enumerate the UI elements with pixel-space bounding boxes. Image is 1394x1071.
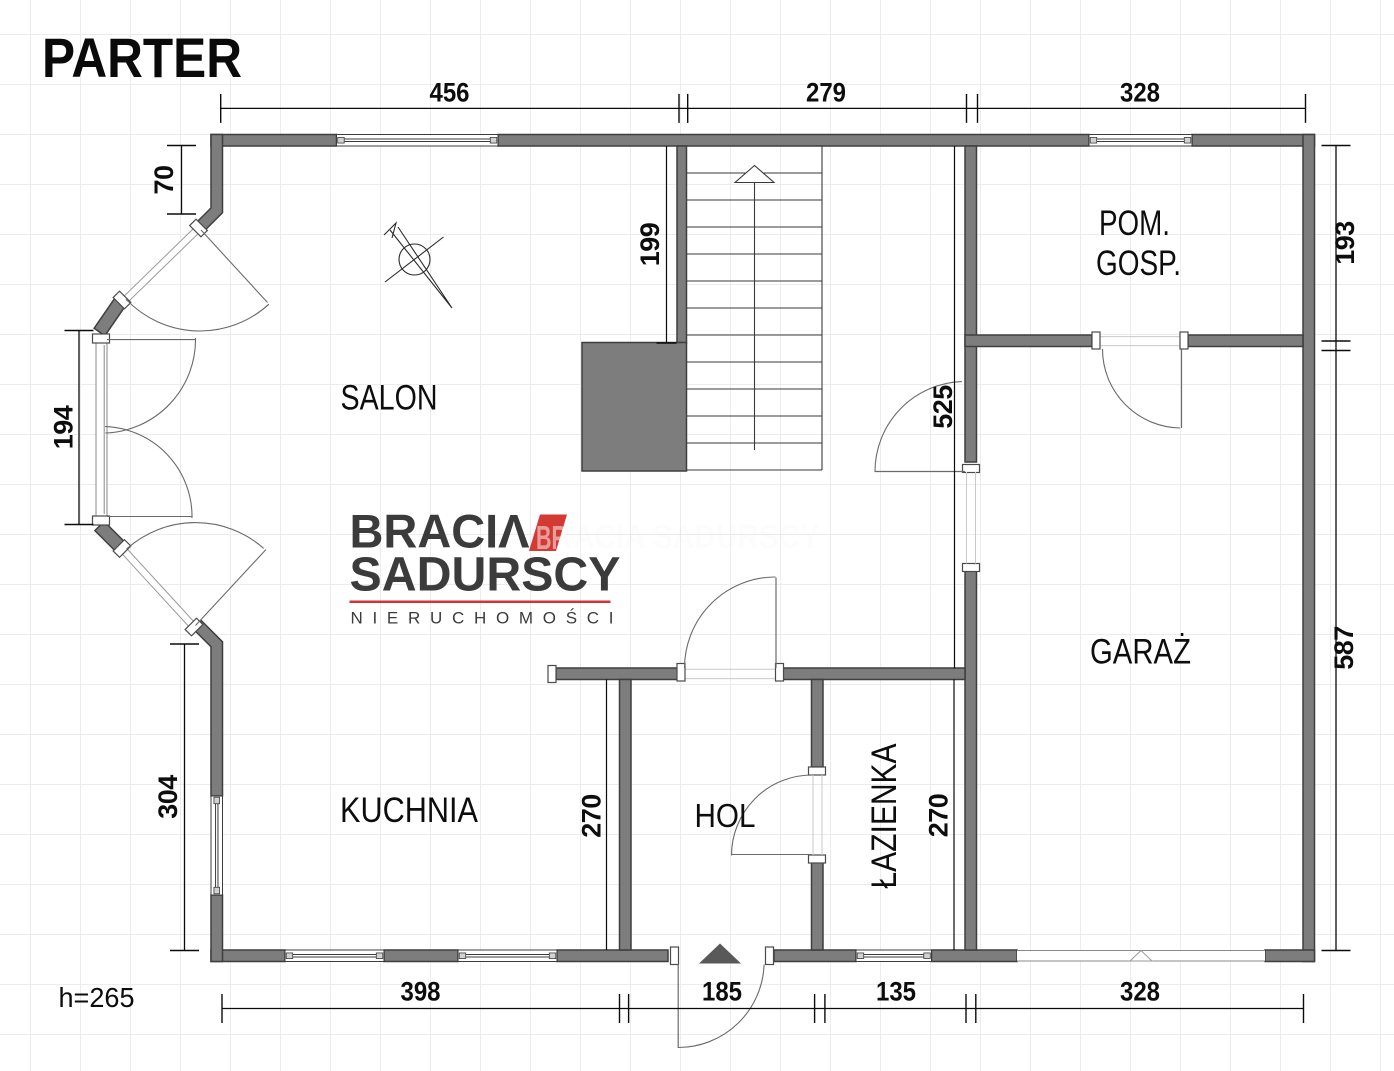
svg-text:328: 328 bbox=[1120, 977, 1160, 1007]
svg-text:POM.: POM. bbox=[1099, 204, 1170, 243]
svg-text:587: 587 bbox=[1329, 626, 1359, 670]
svg-text:304: 304 bbox=[153, 775, 183, 819]
svg-text:GARAŻ: GARAŻ bbox=[1090, 633, 1191, 672]
svg-text:270: 270 bbox=[577, 794, 607, 838]
svg-text:ŁAZIENKA: ŁAZIENKA bbox=[865, 743, 904, 889]
svg-text:PARTER: PARTER bbox=[42, 26, 242, 89]
svg-text:328: 328 bbox=[1120, 78, 1160, 108]
svg-text:279: 279 bbox=[806, 78, 846, 108]
svg-text:270: 270 bbox=[924, 794, 954, 838]
svg-text:185: 185 bbox=[702, 977, 742, 1007]
svg-text:70: 70 bbox=[149, 165, 179, 194]
svg-text:398: 398 bbox=[401, 977, 441, 1007]
svg-text:135: 135 bbox=[876, 977, 916, 1007]
svg-text:456: 456 bbox=[430, 78, 470, 108]
svg-text:KUCHNIA: KUCHNIA bbox=[340, 791, 479, 830]
svg-text:h=265: h=265 bbox=[59, 982, 135, 1013]
svg-text:525: 525 bbox=[928, 385, 958, 429]
svg-text:HOL: HOL bbox=[695, 797, 756, 834]
svg-text:SALON: SALON bbox=[341, 379, 438, 418]
svg-text:GOSP.: GOSP. bbox=[1096, 244, 1181, 283]
svg-text:194: 194 bbox=[49, 405, 79, 449]
svg-text:NIERUCHOMOŚCI: NIERUCHOMOŚCI bbox=[351, 609, 614, 628]
svg-text:SADURSCY: SADURSCY bbox=[350, 549, 621, 602]
svg-text:193: 193 bbox=[1330, 221, 1360, 265]
svg-text:199: 199 bbox=[635, 222, 665, 266]
